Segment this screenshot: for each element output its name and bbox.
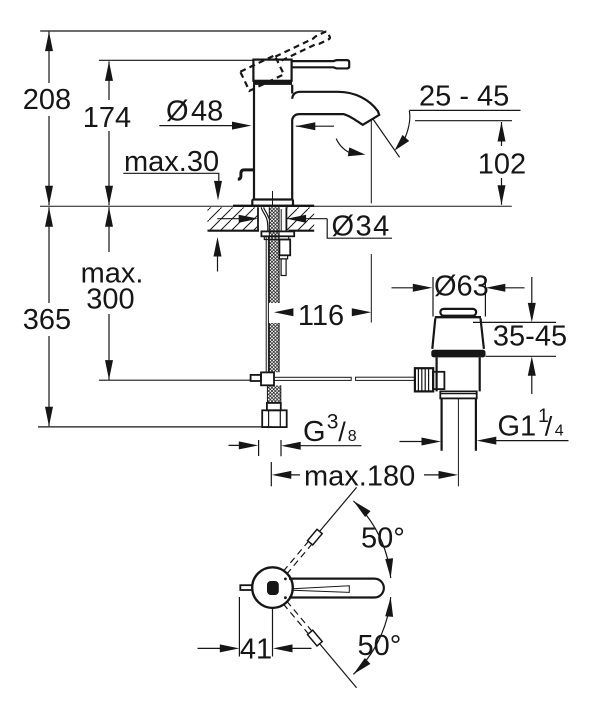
svg-text:35-45: 35-45 xyxy=(493,321,567,353)
svg-text:max.180: max.180 xyxy=(304,461,415,493)
svg-text:41: 41 xyxy=(240,634,272,666)
svg-text:G: G xyxy=(303,416,326,448)
svg-text:208: 208 xyxy=(23,84,71,116)
svg-text:Ø63: Ø63 xyxy=(434,271,489,303)
svg-text:50°: 50° xyxy=(361,523,405,555)
svg-text:Ø 48: Ø 48 xyxy=(166,96,223,128)
svg-text:365: 365 xyxy=(23,304,71,336)
svg-text:174: 174 xyxy=(83,102,131,134)
svg-text:116: 116 xyxy=(298,300,344,332)
svg-text:300: 300 xyxy=(86,284,134,316)
svg-text:102: 102 xyxy=(478,149,526,181)
svg-text:25 - 45: 25 - 45 xyxy=(419,81,509,113)
svg-text:Ø34: Ø34 xyxy=(332,211,391,243)
svg-text:4: 4 xyxy=(555,423,564,440)
svg-text:8: 8 xyxy=(348,428,357,445)
svg-text:G1: G1 xyxy=(498,411,537,443)
svg-text:50°: 50° xyxy=(358,630,402,662)
svg-text:/: / xyxy=(338,417,346,447)
svg-text:/: / xyxy=(545,412,553,442)
svg-text:3: 3 xyxy=(327,410,339,433)
